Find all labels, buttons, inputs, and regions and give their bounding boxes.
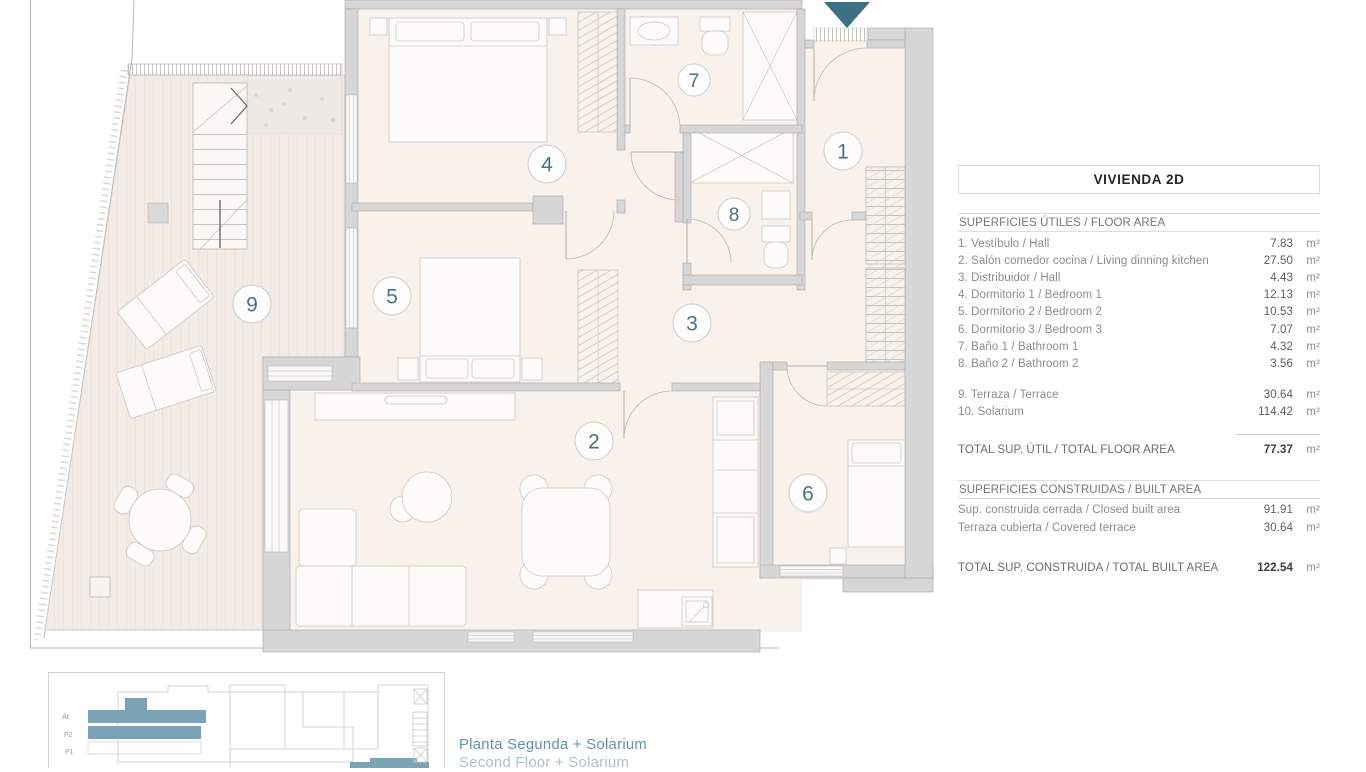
row-label: 5. Dormitorio 2 / Bedroom 2 (958, 306, 1247, 318)
total-label: TOTAL SUP. ÚTIL / TOTAL FLOOR AREA (958, 444, 1247, 456)
row-label: 7. Baño 1 / Bathroom 1 (958, 341, 1247, 353)
area-row: 9. Terraza / Terrace30.64m² (958, 387, 1320, 404)
row-value: 91.91 (1247, 504, 1293, 516)
desk (315, 393, 515, 420)
row-unit: m² (1293, 255, 1320, 267)
row-label: 8. Baño 2 / Bathroom 2 (958, 358, 1247, 370)
row-label: Sup. construida cerrada / Closed built a… (958, 504, 1247, 516)
caption-english: Second Floor + Solarium (459, 754, 647, 772)
row-label: Terraza cubierta / Covered terrace (958, 522, 1247, 534)
row-unit: m² (1293, 341, 1320, 353)
row-unit: m² (1293, 406, 1320, 418)
total-value: 77.37 (1247, 444, 1293, 456)
row-unit: m² (1293, 238, 1320, 250)
planter (148, 203, 168, 223)
row-unit: m² (1293, 306, 1320, 318)
row-value: 27.50 (1247, 255, 1293, 267)
room-label-6: 6 (802, 483, 814, 506)
area-row: Sup. construida cerrada / Closed built a… (958, 502, 1320, 519)
row-value: 30.64 (1247, 522, 1293, 534)
plan-caption: Planta Segunda + Solarium Second Floor +… (459, 736, 647, 772)
row-label: 10. Solarium (958, 406, 1247, 418)
area-row: 3. Distribuidor / Hall4.43m² (958, 269, 1320, 286)
total-built-area-row: TOTAL SUP. CONSTRUIDA / TOTAL BUILT AREA… (958, 558, 1320, 578)
row-value: 7.07 (1247, 324, 1293, 336)
row-value: 3.56 (1247, 358, 1293, 370)
row-label: 4. Dormitorio 1 / Bedroom 1 (958, 289, 1247, 301)
room-label-2: 2 (588, 431, 600, 454)
room-label-9: 9 (246, 294, 258, 317)
wardrobe-bedroom3 (827, 372, 905, 406)
total-unit: m² (1293, 444, 1320, 456)
built-area-rows: Sup. construida cerrada / Closed built a… (958, 499, 1320, 536)
area-row: 4. Dormitorio 1 / Bedroom 112.13m² (958, 287, 1320, 304)
row-value: 30.64 (1247, 389, 1293, 401)
terrace-stairs (193, 83, 247, 249)
row-value: 114.42 (1247, 406, 1293, 418)
built-area-header: SUPERFICIES CONSTRUIDAS / BUILT AREA (958, 480, 1320, 499)
floor-plan: 1 2 3 4 5 6 7 8 9 (0, 0, 940, 768)
side-table-outdoor (90, 577, 110, 597)
row-unit: m² (1293, 389, 1320, 401)
total-rule (1236, 434, 1320, 435)
entrance-doormat (814, 28, 867, 41)
location-minimap: Át. P2 P1 (48, 672, 445, 768)
row-unit: m² (1293, 272, 1320, 284)
entrance-arrow-icon (824, 2, 870, 28)
row-unit: m² (1293, 522, 1320, 534)
room-label-8: 8 (729, 205, 740, 226)
area-row: 5. Dormitorio 2 / Bedroom 210.53m² (958, 304, 1320, 321)
dining-table (520, 475, 612, 589)
row-label: 9. Terraza / Terrace (958, 389, 1247, 401)
room-label-3: 3 (686, 313, 698, 336)
total-unit: m² (1293, 562, 1320, 574)
floor-label-attic: Át. (62, 712, 71, 721)
wardrobe-bedroom2 (578, 270, 618, 383)
area-row: 6. Dormitorio 3 / Bedroom 37.07m² (958, 321, 1320, 338)
row-unit: m² (1293, 324, 1320, 336)
row-unit: m² (1293, 289, 1320, 301)
room-label-7: 7 (689, 71, 700, 92)
row-value: 12.13 (1247, 289, 1293, 301)
row-label: 3. Distribuidor / Hall (958, 272, 1247, 284)
row-value: 7.83 (1247, 238, 1293, 250)
floor-area-rows: 1. Vestíbulo / Hall7.83m² 2. Salón comed… (958, 232, 1320, 421)
highlight-p2-slab (88, 726, 201, 739)
area-row: 2. Salón comedor cocina / Living dinning… (958, 252, 1320, 269)
caption-spanish: Planta Segunda + Solarium (459, 736, 647, 754)
area-row: 10. Solarium114.42m² (958, 404, 1320, 421)
unit-title: VIVIENDA 2D (958, 165, 1320, 194)
area-row: Terraza cubierta / Covered terrace30.64m… (958, 519, 1320, 536)
row-label: 1. Vestíbulo / Hall (958, 238, 1247, 250)
floor-label-p2: P2 (64, 732, 73, 739)
row-unit: m² (1293, 504, 1320, 516)
area-row: 1. Vestíbulo / Hall7.83m² (958, 235, 1320, 252)
total-value: 122.54 (1247, 562, 1293, 574)
row-value: 4.43 (1247, 272, 1293, 284)
solarium-stairs (866, 167, 905, 362)
area-row: 8. Baño 2 / Bathroom 23.56m² (958, 355, 1320, 372)
floor-label-p1: P1 (65, 749, 74, 756)
row-label: 6. Dormitorio 3 / Bedroom 3 (958, 324, 1247, 336)
total-floor-area-row: TOTAL SUP. ÚTIL / TOTAL FLOOR AREA 77.37… (958, 440, 1320, 460)
entrance (814, 2, 870, 41)
area-table-panel: VIVIENDA 2D SUPERFICIES ÚTILES / FLOOR A… (958, 165, 1320, 578)
area-row: 7. Baño 1 / Bathroom 14.32m² (958, 338, 1320, 355)
room-label-5: 5 (386, 286, 398, 309)
page: { "plan": { "rooms": {"r1":"1","r2":"2",… (0, 0, 1366, 768)
room-label-4: 4 (541, 154, 553, 177)
row-unit: m² (1293, 358, 1320, 370)
row-value: 4.32 (1247, 341, 1293, 353)
wardrobe-bedroom1 (578, 12, 618, 132)
highlight-attic-floor (125, 698, 147, 710)
room-label-1: 1 (837, 141, 849, 164)
floor-area-header: SUPERFICIES ÚTILES / FLOOR AREA (958, 213, 1320, 232)
total-label: TOTAL SUP. CONSTRUIDA / TOTAL BUILT AREA (958, 562, 1247, 574)
highlight-attic-slab (88, 710, 206, 723)
row-label: 2. Salón comedor cocina / Living dinning… (958, 255, 1247, 267)
row-value: 10.53 (1247, 306, 1293, 318)
bed-double-1 (370, 18, 566, 142)
